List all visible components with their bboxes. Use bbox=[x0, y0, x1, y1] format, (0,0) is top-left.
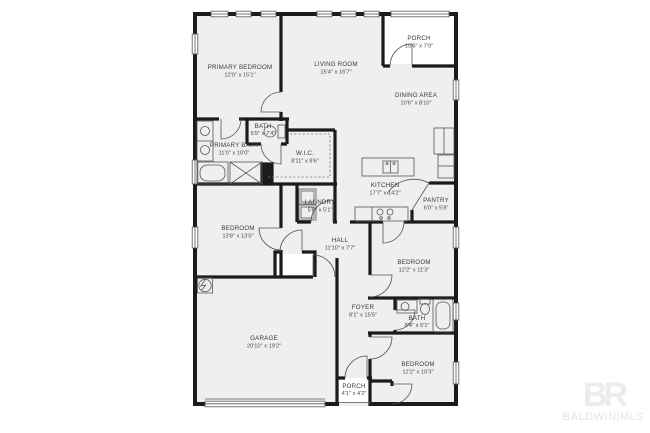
wall-block bbox=[262, 164, 272, 184]
window bbox=[453, 303, 459, 320]
window bbox=[364, 11, 379, 17]
window bbox=[192, 227, 198, 248]
watermark-label: BALDWIN|MLS bbox=[563, 412, 644, 423]
window bbox=[261, 11, 276, 17]
window bbox=[453, 80, 459, 100]
floor-plan-page: PRIMARY BEDROOM12'0" x 15'1" LIVING ROOM… bbox=[0, 0, 650, 433]
watermark-logo: BR bbox=[563, 381, 644, 410]
watermark: BR BALDWIN|MLS bbox=[563, 381, 644, 423]
window bbox=[453, 227, 459, 248]
window bbox=[317, 11, 332, 17]
window bbox=[341, 11, 356, 17]
floor-plan-drawing: PRIMARY BEDROOM12'0" x 15'1" LIVING ROOM… bbox=[0, 0, 650, 433]
window bbox=[192, 34, 198, 54]
window bbox=[453, 362, 459, 384]
porch-screen bbox=[391, 11, 449, 17]
window bbox=[211, 11, 228, 17]
window bbox=[236, 11, 251, 17]
